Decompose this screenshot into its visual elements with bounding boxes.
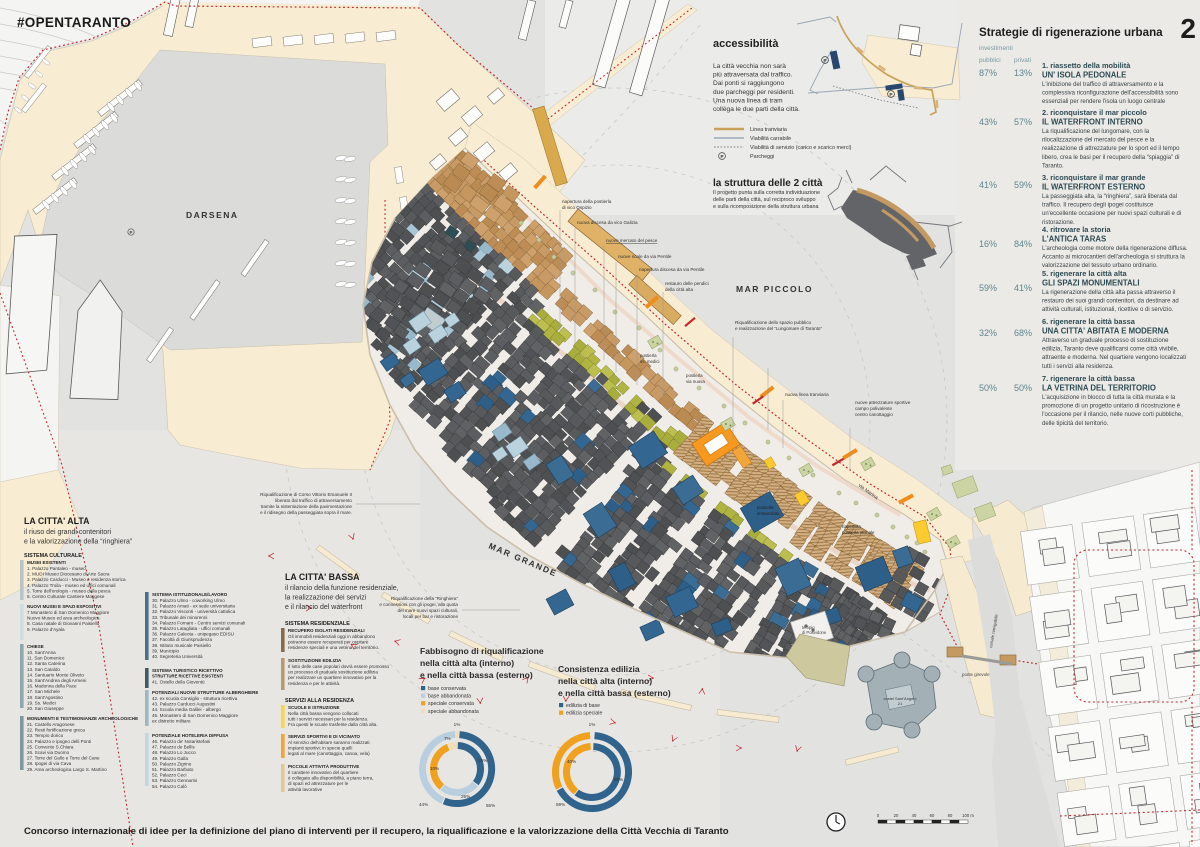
svg-text:8. Casa natale di Giovanni Pai: 8. Casa natale di Giovanni Paisiello bbox=[27, 621, 100, 626]
svg-text:Concorso internazionale di ide: Concorso internazionale di idee per la d… bbox=[24, 826, 729, 837]
svg-text:Accanto ai microcantieri dell': Accanto ai microcantieri dell'archeologi… bbox=[1042, 255, 1186, 261]
svg-text:centro canottaggio: centro canottaggio bbox=[855, 412, 893, 417]
svg-text:60: 60 bbox=[930, 813, 935, 818]
svg-text:100 m: 100 m bbox=[962, 813, 974, 818]
svg-text:50. Palazzo Zigrino: 50. Palazzo Zigrino bbox=[152, 761, 192, 766]
svg-text:Linea tranviaria: Linea tranviaria bbox=[750, 127, 787, 133]
svg-text:7 Monastero di San Domenico Ma: 7 Monastero di San Domenico Maggiore bbox=[27, 610, 110, 615]
svg-text:52. Palazzo Ceci: 52. Palazzo Ceci bbox=[152, 773, 186, 778]
svg-text:51. Palazzo Barbato: 51. Palazzo Barbato bbox=[152, 767, 194, 772]
svg-text:SISTEMA ISTITUZIONALE/LAVORO: SISTEMA ISTITUZIONALE/LAVORO bbox=[152, 592, 228, 597]
svg-text:e la valorizzazione della “rin: e la valorizzazione della “ringhiera” bbox=[24, 539, 133, 546]
svg-text:Riqualificazione di Corso Vitt: Riqualificazione di Corso Vittorio Emanu… bbox=[260, 492, 352, 497]
svg-text:4. ritrovare la storia: 4. ritrovare la storia bbox=[1042, 225, 1111, 234]
svg-text:la realizzazione dei servizi: la realizzazione dei servizi bbox=[285, 595, 367, 602]
svg-text:15. Sant'Andrea degli Armeni: 15. Sant'Andrea degli Armeni bbox=[27, 678, 86, 683]
svg-text:SERVIZI ALLA RESIDENZA: SERVIZI ALLA RESIDENZA bbox=[285, 698, 354, 704]
svg-text:ex distretto militare: ex distretto militare bbox=[152, 718, 191, 723]
svg-text:più attraversata dal traffico.: più attraversata dal traffico. bbox=[713, 72, 793, 79]
svg-text:accessibilità: accessibilità bbox=[713, 38, 779, 50]
svg-text:2. MUDI Museo Diocesano di Art: 2. MUDI Museo Diocesano di Arte Sacra bbox=[27, 572, 110, 577]
svg-text:e realizzazione del “Lungomare: e realizzazione del “Lungomare di Tarant… bbox=[735, 326, 822, 331]
svg-text:pubblici: pubblici bbox=[979, 57, 1001, 64]
svg-text:residenze speciali e una vetri: residenze speciali e una vetrina del ter… bbox=[288, 645, 379, 650]
svg-text:nuove scale da via Pentile: nuove scale da via Pentile bbox=[618, 254, 672, 259]
svg-text:POTENZIALE HOTELERIA DIFFUSA: POTENZIALE HOTELERIA DIFFUSA bbox=[152, 733, 229, 738]
svg-text:riapertura: riapertura bbox=[842, 524, 861, 529]
svg-text:1. riassetto della mobilità: 1. riassetto della mobilità bbox=[1042, 61, 1131, 70]
svg-text:Il lotto delle case popolari d: Il lotto delle case popolari dovrà esser… bbox=[288, 664, 390, 669]
svg-text:nuova linea tranviaria: nuova linea tranviaria bbox=[785, 392, 829, 397]
svg-text:LA CITTA' ALTA: LA CITTA' ALTA bbox=[24, 516, 90, 526]
svg-text:è collegato alla disponibilità: è collegato alla disponibilità, a piano … bbox=[288, 776, 374, 781]
svg-text:6. rigenerare la città bassa: 6. rigenerare la città bassa bbox=[1042, 317, 1136, 326]
svg-text:NUOVI MUSEI E SPAZI ESPOSITIVI: NUOVI MUSEI E SPAZI ESPOSITIVI bbox=[27, 604, 101, 609]
svg-text:postierla: postierla bbox=[640, 353, 657, 358]
svg-text:Strategie di rigenerazione urb: Strategie di rigenerazione urbana bbox=[979, 26, 1163, 39]
svg-text:44%: 44% bbox=[419, 802, 428, 807]
svg-text:e nella città bassa (esterno): e nella città bassa (esterno) bbox=[558, 688, 671, 698]
svg-text:riapertura discesa da via Pent: riapertura discesa da via Pentile bbox=[639, 267, 705, 272]
svg-text:68%: 68% bbox=[1014, 328, 1032, 338]
svg-text:12. Santa Caterina: 12. Santa Caterina bbox=[27, 661, 66, 666]
svg-text:14. Santuario Monte Oliveto: 14. Santuario Monte Oliveto bbox=[27, 672, 84, 677]
svg-text:LA CITTA' BASSA: LA CITTA' BASSA bbox=[285, 572, 360, 582]
svg-text:37. Facoltà di Giurisprudenza: 37. Facoltà di Giurisprudenza bbox=[152, 637, 212, 642]
svg-text:80: 80 bbox=[948, 813, 953, 818]
svg-text:MAR PICCOLO: MAR PICCOLO bbox=[736, 284, 813, 294]
svg-text:40. Segreteria Università: 40. Segreteria Università bbox=[152, 654, 203, 659]
svg-text:e nella città bassa (esterno): e nella città bassa (esterno) bbox=[420, 670, 533, 680]
svg-text:25%: 25% bbox=[461, 794, 470, 799]
svg-text:36. Palazzo Galeota - unipegas: 36. Palazzo Galeota - unipegaso EDISU bbox=[152, 632, 234, 637]
svg-text:22. Resti fortificazione greca: 22. Resti fortificazione greca bbox=[27, 728, 85, 733]
svg-text:SISTEMA CULTURALE: SISTEMA CULTURALE bbox=[24, 553, 82, 559]
svg-text:2. riconquistare il mar piccol: 2. riconquistare il mar piccolo bbox=[1042, 108, 1147, 117]
svg-text:traffico. Il recupero degli ip: traffico. Il recupero degli ipogei costi… bbox=[1042, 203, 1154, 209]
svg-text:via nuova: via nuova bbox=[686, 379, 705, 384]
svg-text:35%: 35% bbox=[478, 758, 487, 763]
svg-text:Al servizio dell'abitare saran: Al servizio dell'abitare saranno realizz… bbox=[288, 740, 370, 745]
svg-text:23. Tempio dorico: 23. Tempio dorico bbox=[27, 733, 64, 738]
svg-text:44. Scuola media Galilei - alb: 44. Scuola media Galilei - albergo bbox=[152, 707, 221, 712]
svg-text:tutti i servizi alla residenza: tutti i servizi alla residenza. bbox=[1042, 364, 1114, 370]
svg-text:16. Madonna della Pace: 16. Madonna della Pace bbox=[27, 684, 77, 689]
svg-text:L'acquisizione in blocco di tu: L'acquisizione in blocco di tutta la cit… bbox=[1042, 395, 1176, 401]
svg-text:45. Monastero di San Domenico: 45. Monastero di San Domenico Maggiore bbox=[152, 713, 238, 718]
svg-text:59%: 59% bbox=[1014, 180, 1032, 190]
svg-text:edilizia, Taranto deve qualifi: edilizia, Taranto deve qualificarsi come… bbox=[1042, 347, 1179, 353]
svg-text:riapertura della postierla: riapertura della postierla bbox=[562, 199, 612, 204]
svg-text:L'archeologia come motore dell: L'archeologia come motore della rigenera… bbox=[1042, 246, 1188, 252]
svg-text:1%: 1% bbox=[589, 722, 596, 727]
svg-text:26. Scavi via Duomo: 26. Scavi via Duomo bbox=[27, 750, 70, 755]
svg-text:9. Palazzo d'Ayala: 9. Palazzo d'Ayala bbox=[27, 627, 65, 632]
svg-text:18. Sant'Agostino: 18. Sant'Agostino bbox=[27, 695, 63, 700]
svg-text:P: P bbox=[130, 230, 133, 235]
svg-text:41%: 41% bbox=[1014, 283, 1032, 293]
svg-text:MUSEI ESISTENTI: MUSEI ESISTENTI bbox=[27, 560, 66, 565]
svg-text:ss. medici: ss. medici bbox=[640, 359, 660, 364]
svg-text:l'occasione per il rilancio, n: l'occasione per il rilancio, nelle nuove… bbox=[1042, 412, 1183, 418]
svg-text:13%: 13% bbox=[1014, 68, 1032, 78]
svg-text:L'ANTICA TARAS: L'ANTICA TARAS bbox=[1042, 235, 1106, 244]
svg-text:7. rigenerare la città bassa: 7. rigenerare la città bassa bbox=[1042, 374, 1136, 383]
svg-text:La rigenerazione della città a: La rigenerazione della città alta passa … bbox=[1042, 290, 1175, 296]
svg-text:un'eccellente occasione per nu: un'eccellente occasione per nuovi spazi … bbox=[1042, 211, 1181, 217]
svg-text:19. Ss. Medici: 19. Ss. Medici bbox=[27, 700, 56, 705]
svg-text:Il carattere innovativo del qu: Il carattere innovativo del quartiere bbox=[288, 770, 359, 775]
svg-text:5. rigenerare la città alta: 5. rigenerare la città alta bbox=[1042, 269, 1128, 278]
svg-text:la struttura delle 2 città: la struttura delle 2 città bbox=[713, 178, 823, 189]
svg-text:41%: 41% bbox=[979, 180, 997, 190]
svg-text:e il ridisegno della passeggia: e il ridisegno della passeggiata sopra i… bbox=[260, 510, 352, 515]
svg-text:L'inibizione del traffico di a: L'inibizione del traffico di attraversam… bbox=[1042, 82, 1164, 88]
svg-text:Viabilità di servizio (carico: Viabilità di servizio (carico e scarico … bbox=[750, 145, 852, 151]
svg-text:CHIESE: CHIESE bbox=[27, 644, 44, 649]
svg-text:della città alta: della città alta bbox=[665, 287, 694, 292]
svg-text:potranno essere recuperati per: potranno essere recuperati per ospitare bbox=[288, 640, 369, 645]
svg-text:rilocalizzazione del mercato d: rilocalizzazione del mercato del pesce e… bbox=[1042, 138, 1155, 144]
svg-text:La passeggiata alta, la “ringh: La passeggiata alta, la “ringhiera”, sar… bbox=[1042, 194, 1177, 200]
svg-text:delle parti della città, sul r: delle parti della città, sul reciproco s… bbox=[713, 197, 815, 203]
svg-text:restauro delle pendici: restauro delle pendici bbox=[665, 281, 709, 286]
svg-text:IL WATERFRONT INTERNO: IL WATERFRONT INTERNO bbox=[1042, 118, 1143, 127]
svg-text:Nuovo Museo ed area archeologi: Nuovo Museo ed area archeologica bbox=[27, 616, 100, 621]
svg-text:complessiva riconfigurazione d: complessiva riconfigurazione dell'access… bbox=[1042, 91, 1179, 97]
svg-text:28. Ipogei di via Cava: 28. Ipogei di via Cava bbox=[27, 761, 72, 766]
svg-text:SERVIZI SPORTIVI E DI VICINATO: SERVIZI SPORTIVI E DI VICINATO bbox=[288, 734, 361, 739]
svg-text:speciale abbandonata: speciale abbandonata bbox=[428, 709, 479, 715]
svg-text:Nella città bassa vengono coll: Nella città bassa vengono collocati bbox=[288, 711, 358, 716]
svg-text:attraente e moderna. Nel quart: attraente e moderna. Nel quartiere vengo… bbox=[1042, 355, 1186, 361]
svg-text:40: 40 bbox=[912, 813, 917, 818]
svg-text:tramite la sistemazione della: tramite la sistemazione della pavimentaz… bbox=[261, 504, 353, 509]
svg-text:6. Centro Culturale Cantiere M: 6. Centro Culturale Cantiere Maggese bbox=[27, 594, 105, 599]
svg-text:Fabbisogno di riqualificazione: Fabbisogno di riqualificazione bbox=[420, 646, 544, 656]
svg-text:43. Palazzo Carducci Augustini: 43. Palazzo Carducci Augustini bbox=[152, 702, 215, 707]
svg-text:7%: 7% bbox=[444, 736, 451, 741]
svg-text:21. Castello Aragonese: 21. Castello Aragonese bbox=[27, 722, 75, 727]
svg-text:GLI SPAZI MONUMENTALI: GLI SPAZI MONUMENTALI bbox=[1042, 279, 1140, 288]
svg-text:MONUMENTI E TESTIMONIANZE ARCH: MONUMENTI E TESTIMONIANZE ARCHEOLOGICHE bbox=[27, 716, 138, 721]
svg-text:55%: 55% bbox=[486, 803, 495, 808]
svg-text:nuove attrezzature sportive: nuove attrezzature sportive bbox=[855, 400, 911, 405]
svg-text:SCUOLE E ISTRUZIONE: SCUOLE E ISTRUZIONE bbox=[288, 705, 340, 710]
svg-text:La riqualificazione del lungom: La riqualificazione del lungomare, con l… bbox=[1042, 129, 1150, 135]
svg-text:DARSENA: DARSENA bbox=[186, 210, 239, 220]
svg-text:53. Palazzo Gennarini: 53. Palazzo Gennarini bbox=[152, 778, 197, 783]
svg-text:24. Palazzo e ipogeo delli Pon: 24. Palazzo e ipogeo delli Ponti bbox=[27, 739, 91, 744]
svg-text:1%: 1% bbox=[454, 722, 461, 727]
svg-text:42. ex scuola Consiglio - stru: 42. ex scuola Consiglio - struttura rice… bbox=[152, 696, 238, 701]
svg-text:32. Palazzo Visconti - univers: 32. Palazzo Visconti - università cattol… bbox=[152, 609, 236, 614]
svg-text:e sulla ricomposizione della s: e sulla ricomposizione della struttura u… bbox=[713, 204, 818, 210]
svg-text:3. Palazzo Carducci - Museo e: 3. Palazzo Carducci - Museo e residenza … bbox=[27, 577, 126, 582]
svg-text:nuova discesa da vico Galizia: nuova discesa da vico Galizia bbox=[577, 220, 638, 225]
svg-text:speciale conservata: speciale conservata bbox=[428, 701, 474, 707]
svg-text:tutti i servizi necessari per: tutti i servizi necessari per la residen… bbox=[288, 717, 368, 722]
svg-text:41. Ostello della Gioventù: 41. Ostello della Gioventù bbox=[152, 680, 205, 685]
svg-text:20. San Giuseppe: 20. San Giuseppe bbox=[27, 706, 64, 711]
svg-text:IL WATERFRONT ESTERNO: IL WATERFRONT ESTERNO bbox=[1042, 183, 1145, 192]
svg-text:16%: 16% bbox=[979, 239, 997, 249]
svg-text:Riqualificazione della “Ringhi: Riqualificazione della “Ringhiera” bbox=[391, 596, 459, 601]
svg-text:RECUPERO ISOLATI RESIDENZIALI: RECUPERO ISOLATI RESIDENZIALI bbox=[288, 628, 365, 633]
svg-text:Riqualificazione dello spazio: Riqualificazione dello spazio pubblico bbox=[735, 320, 812, 325]
svg-text:48. Palazzo Lo Jucco: 48. Palazzo Lo Jucco bbox=[152, 750, 196, 755]
svg-text:30. Palazzo Ulmo - coworking U: 30. Palazzo Ulmo - coworking Ulmo bbox=[152, 598, 225, 603]
svg-text:Consistenza edilizia: Consistenza edilizia bbox=[558, 664, 640, 674]
svg-text:POTENZIALI NUOVE STRUTTURE ALB: POTENZIALI NUOVE STRUTTURE ALBERGHIERE bbox=[152, 690, 258, 695]
svg-text:ponte girevole: ponte girevole bbox=[962, 672, 990, 677]
svg-text:UNA CITTA' ABITATA E MODERNA: UNA CITTA' ABITATA E MODERNA bbox=[1042, 327, 1169, 336]
svg-text:43%: 43% bbox=[979, 117, 997, 127]
svg-text:10. Sant'Anna: 10. Sant'Anna bbox=[27, 650, 56, 655]
svg-text:Attraverso un graduale process: Attraverso un graduale processo di sosti… bbox=[1042, 338, 1169, 344]
svg-text:21: 21 bbox=[898, 701, 903, 706]
svg-text:e il rilancio del waterfront: e il rilancio del waterfront bbox=[285, 604, 362, 611]
svg-text:10%: 10% bbox=[430, 766, 439, 771]
svg-text:postierla: postierla bbox=[757, 505, 774, 510]
svg-text:49. Palazzo Galla: 49. Palazzo Galla bbox=[152, 756, 188, 761]
svg-text:34. Palazzo Fornaro - Centro s: 34. Palazzo Fornaro - Centro servizi com… bbox=[152, 620, 245, 625]
svg-text:UN' ISOLA PEDONALE: UN' ISOLA PEDONALE bbox=[1042, 71, 1126, 80]
svg-text:attività culturali, istituzion: attività culturali, istituzionali, ricet… bbox=[1042, 307, 1174, 313]
svg-text:4. Palazzo Troila - museo ed u: 4. Palazzo Troila - museo ed uffici comu… bbox=[27, 583, 116, 588]
svg-text:immacolata: immacolata bbox=[757, 511, 780, 516]
svg-text:59%: 59% bbox=[556, 802, 565, 807]
svg-text:base conservata: base conservata bbox=[428, 686, 466, 692]
svg-text:40%: 40% bbox=[567, 759, 576, 764]
svg-text:collega le due parti della cit: collega le due parti della città. bbox=[713, 106, 800, 113]
svg-text:edilizia di base: edilizia di base bbox=[566, 703, 600, 709]
svg-text:89%: 89% bbox=[614, 777, 623, 782]
svg-text:38. Istituto musicale Paisiell: 38. Istituto musicale Paisiello bbox=[152, 643, 211, 648]
svg-text:promozione di un progetto unit: promozione di un progetto unitario di ri… bbox=[1042, 404, 1181, 410]
svg-text:Gli immobili residenziali oggi: Gli immobili residenziali oggi in abband… bbox=[288, 634, 376, 639]
svg-text:restauro dei suoi grandi conte: restauro dei suoi grandi contenitori, da… bbox=[1042, 299, 1179, 305]
svg-text:SISTEMA TURISTICO RICETTIVO: SISTEMA TURISTICO RICETTIVO bbox=[152, 668, 223, 673]
svg-text:87%: 87% bbox=[979, 68, 997, 78]
svg-text:33. Tribunale dei minorenni: 33. Tribunale dei minorenni bbox=[152, 615, 207, 620]
svg-text:investimenti: investimenti bbox=[979, 45, 1013, 52]
svg-text:SISTEMA RESIDENZIALE: SISTEMA RESIDENZIALE bbox=[285, 621, 350, 627]
svg-text:il riuso dei grandi contenitor: il riuso dei grandi contenitori bbox=[24, 529, 112, 536]
svg-text:impianti sportivi; in specie q: impianti sportivi; in specie quelli bbox=[288, 746, 352, 751]
svg-text:essenziali per rendere l'isola: essenziali per rendere l'isola un luogo … bbox=[1042, 99, 1166, 105]
svg-text:29. Area archeologica Largo S.: 29. Area archeologica Largo S. Martino bbox=[27, 767, 107, 772]
svg-text:legati al mare (canottaggio, c: legati al mare (canottaggio, canoa, vela… bbox=[288, 751, 370, 756]
svg-text:liberato dal traffico di attra: liberato dal traffico di attraversamento bbox=[275, 498, 352, 503]
svg-text:27. Torre del Gallo e Torre de: 27. Torre del Gallo e Torre del Cane bbox=[27, 756, 100, 761]
svg-text:Il progetto punta sulla corret: Il progetto punta sulla corretta individ… bbox=[713, 190, 820, 196]
svg-text:PICCOLE ATTIVITÀ PRODUTTIVE: PICCOLE ATTIVITÀ PRODUTTIVE bbox=[288, 763, 359, 769]
svg-text:35. Palazzo Latagliata - uffic: 35. Palazzo Latagliata - uffici comunali bbox=[152, 626, 230, 631]
svg-text:5. Torre dell'orologio - museo: 5. Torre dell'orologio - museo della pes… bbox=[27, 588, 111, 593]
svg-text:nella città alta (interno): nella città alta (interno) bbox=[420, 658, 514, 668]
svg-text:del mare nuovi spazi culturali: del mare nuovi spazi culturali, bbox=[397, 608, 458, 613]
svg-text:nuovo mercato del pesce: nuovo mercato del pesce bbox=[606, 238, 658, 243]
svg-text:SOSTITUZIONE EDILIZIA: SOSTITUZIONE EDILIZIA bbox=[288, 658, 342, 663]
svg-text:Viabilità carrabile: Viabilità carrabile bbox=[750, 136, 791, 142]
svg-text:Parcheggi: Parcheggi bbox=[750, 154, 774, 160]
svg-text:50%: 50% bbox=[979, 383, 997, 393]
svg-text:La città vecchia non sarà: La città vecchia non sarà bbox=[713, 63, 786, 70]
svg-text:3. riconquistare il mar grande: 3. riconquistare il mar grande bbox=[1042, 173, 1146, 182]
svg-text:per realizzare un quartiere in: per realizzare un quartiere innovativo p… bbox=[288, 675, 377, 680]
svg-text:17. San Michele: 17. San Michele bbox=[27, 689, 60, 694]
svg-text:84%: 84% bbox=[1014, 239, 1032, 249]
svg-text:Taranto.: Taranto. bbox=[1042, 163, 1064, 169]
svg-text:realizzazione di attrezzature: realizzazione di attrezzature per lo spo… bbox=[1042, 146, 1180, 152]
svg-text:59%: 59% bbox=[979, 283, 997, 293]
svg-text:13. San Cataldo: 13. San Cataldo bbox=[27, 667, 60, 672]
svg-text:base abbandonata: base abbandonata bbox=[428, 694, 471, 700]
svg-text:delle tipicità del territorio.: delle tipicità del territorio. bbox=[1042, 421, 1109, 427]
svg-text:31. Palazzo Amati - ex sede un: 31. Palazzo Amati - ex sede universitari… bbox=[152, 604, 235, 609]
svg-text:attività lavorative: attività lavorative bbox=[288, 787, 323, 792]
svg-text:di vico Ospizio: di vico Ospizio bbox=[562, 205, 592, 210]
svg-text:campo polivalente: campo polivalente bbox=[855, 406, 892, 411]
svg-text:libero, crea le basi per il re: libero, crea le basi per il recupero del… bbox=[1042, 155, 1179, 161]
svg-text:57%: 57% bbox=[1014, 117, 1032, 127]
svg-text:di spazi ed attrezzature per l: di spazi ed attrezzature per le bbox=[288, 781, 349, 786]
svg-text:il rilancio della funzione res: il rilancio della funzione residenziale, bbox=[285, 585, 399, 592]
svg-text:54. Palazzo Calò: 54. Palazzo Calò bbox=[152, 784, 187, 789]
svg-text:un processo di graduale sostit: un processo di graduale sostituzione edi… bbox=[288, 670, 378, 675]
svg-text:50%: 50% bbox=[1014, 383, 1032, 393]
svg-text:edilizia speciale: edilizia speciale bbox=[566, 711, 602, 717]
svg-text:20: 20 bbox=[894, 813, 899, 818]
svg-text:1. Palazzo Pantaleo - museo: 1. Palazzo Pantaleo - museo bbox=[27, 566, 86, 571]
svg-text:locali per bar e ristorazione: locali per bar e ristorazione bbox=[403, 614, 459, 619]
svg-text:postierla: postierla bbox=[686, 373, 703, 378]
svg-text:#OPENTARANTO: #OPENTARANTO bbox=[17, 15, 131, 30]
svg-text:STRUTTURE RICETTIVE ESISTENTI: STRUTTURE RICETTIVE ESISTENTI bbox=[152, 674, 223, 679]
svg-text:LA VETRINA DEL TERRITORIO: LA VETRINA DEL TERRITORIO bbox=[1042, 384, 1156, 393]
svg-text:2: 2 bbox=[1180, 13, 1196, 44]
svg-text:postierla vicinale: postierla vicinale bbox=[842, 530, 875, 535]
svg-text:47. Palazzo de Bellis: 47. Palazzo de Bellis bbox=[152, 745, 195, 750]
svg-text:di Poseidone: di Poseidone bbox=[802, 630, 827, 635]
svg-text:due parcheggi per residenti.: due parcheggi per residenti. bbox=[713, 89, 795, 96]
svg-text:32%: 32% bbox=[979, 328, 997, 338]
svg-text:Dai ponti si raggiungono: Dai ponti si raggiungono bbox=[713, 80, 784, 87]
svg-text:Fra questi le scuole trasferit: Fra questi le scuole trasferite dalla ci… bbox=[288, 722, 378, 727]
svg-text:P: P bbox=[720, 154, 723, 159]
svg-text:e connessioni con gli ipogei,: e connessioni con gli ipogei, alla quota bbox=[379, 602, 458, 607]
svg-text:privati: privati bbox=[1014, 57, 1031, 64]
svg-text:Una nuova linea di tram: Una nuova linea di tram bbox=[713, 97, 783, 104]
svg-text:nella città alta (interno): nella città alta (interno) bbox=[558, 676, 652, 686]
svg-text:46. Palazzo de' Notaristefani: 46. Palazzo de' Notaristefani bbox=[152, 739, 210, 744]
svg-text:residenza e per le attività.: residenza e per le attività. bbox=[288, 681, 340, 686]
svg-text:39. Municipio: 39. Municipio bbox=[152, 648, 180, 653]
svg-text:25. Convento S.Chiara: 25. Convento S.Chiara bbox=[27, 744, 74, 749]
svg-text:11. San Domenico: 11. San Domenico bbox=[27, 656, 65, 661]
